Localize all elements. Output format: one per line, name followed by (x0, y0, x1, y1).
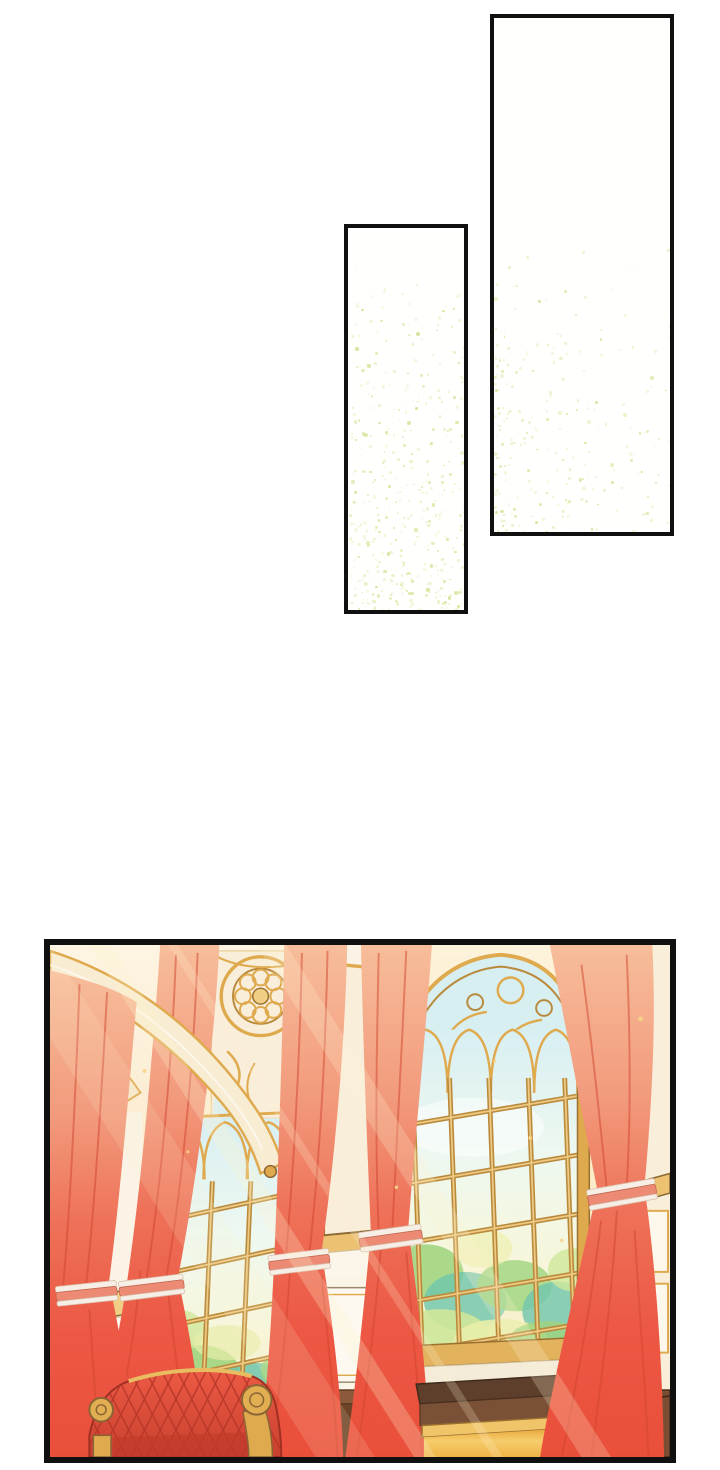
gold-dust-layer (494, 18, 670, 532)
comic-panel-palace-interior (44, 939, 676, 1463)
webtoon-page (0, 0, 720, 1470)
gold-dust-layer (348, 228, 464, 610)
comic-panel-empty-left (344, 224, 468, 614)
comic-panel-empty-right (490, 14, 674, 536)
palace-interior-illustration (50, 945, 670, 1457)
